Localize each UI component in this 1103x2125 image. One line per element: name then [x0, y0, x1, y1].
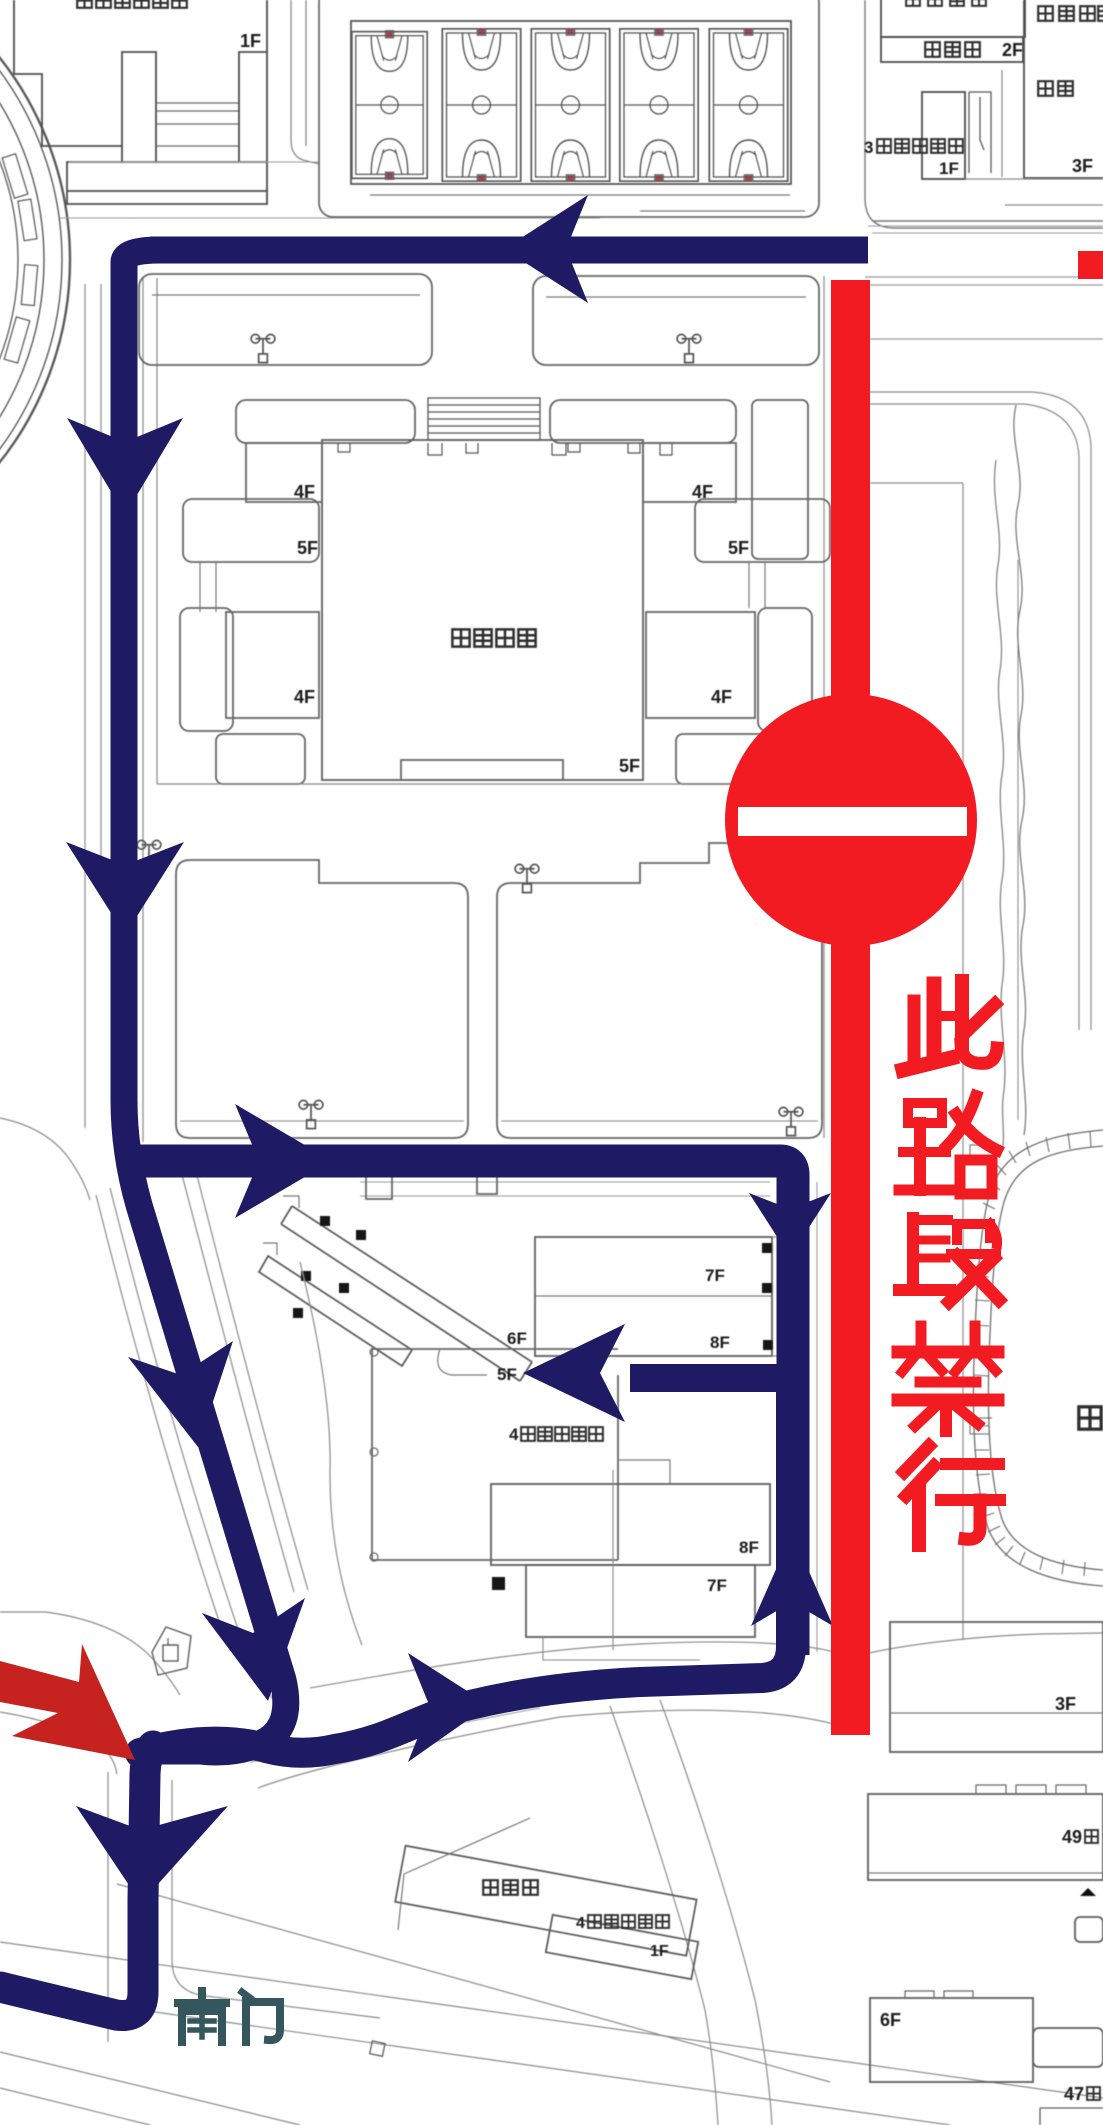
svg-text:49: 49 — [1062, 1827, 1082, 1847]
svg-text:1F: 1F — [650, 1943, 669, 1960]
svg-text:1F: 1F — [939, 159, 959, 178]
svg-text:2F: 2F — [1002, 40, 1023, 60]
svg-text:1F: 1F — [240, 31, 261, 51]
svg-text:5F: 5F — [728, 538, 749, 558]
svg-text:3: 3 — [864, 138, 873, 157]
svg-text:8F: 8F — [739, 1538, 759, 1557]
svg-text:7F: 7F — [707, 1576, 727, 1595]
svg-text:7F: 7F — [705, 1266, 725, 1285]
svg-text:5F: 5F — [297, 538, 318, 558]
svg-text:4F: 4F — [692, 482, 713, 502]
svg-text:5F: 5F — [497, 1365, 517, 1384]
svg-text:4F: 4F — [711, 687, 732, 707]
svg-text:4: 4 — [509, 1425, 519, 1444]
svg-text:6F: 6F — [880, 2010, 901, 2030]
svg-text:8F: 8F — [710, 1333, 730, 1352]
svg-text:4F: 4F — [294, 482, 315, 502]
svg-text:3F: 3F — [1055, 1694, 1076, 1714]
svg-text:4F: 4F — [294, 687, 315, 707]
svg-text:4: 4 — [576, 1915, 585, 1932]
svg-text:5F: 5F — [619, 756, 640, 776]
svg-text:3F: 3F — [1072, 156, 1093, 176]
svg-text:47: 47 — [1064, 2084, 1084, 2104]
svg-text:6F: 6F — [507, 1329, 527, 1348]
